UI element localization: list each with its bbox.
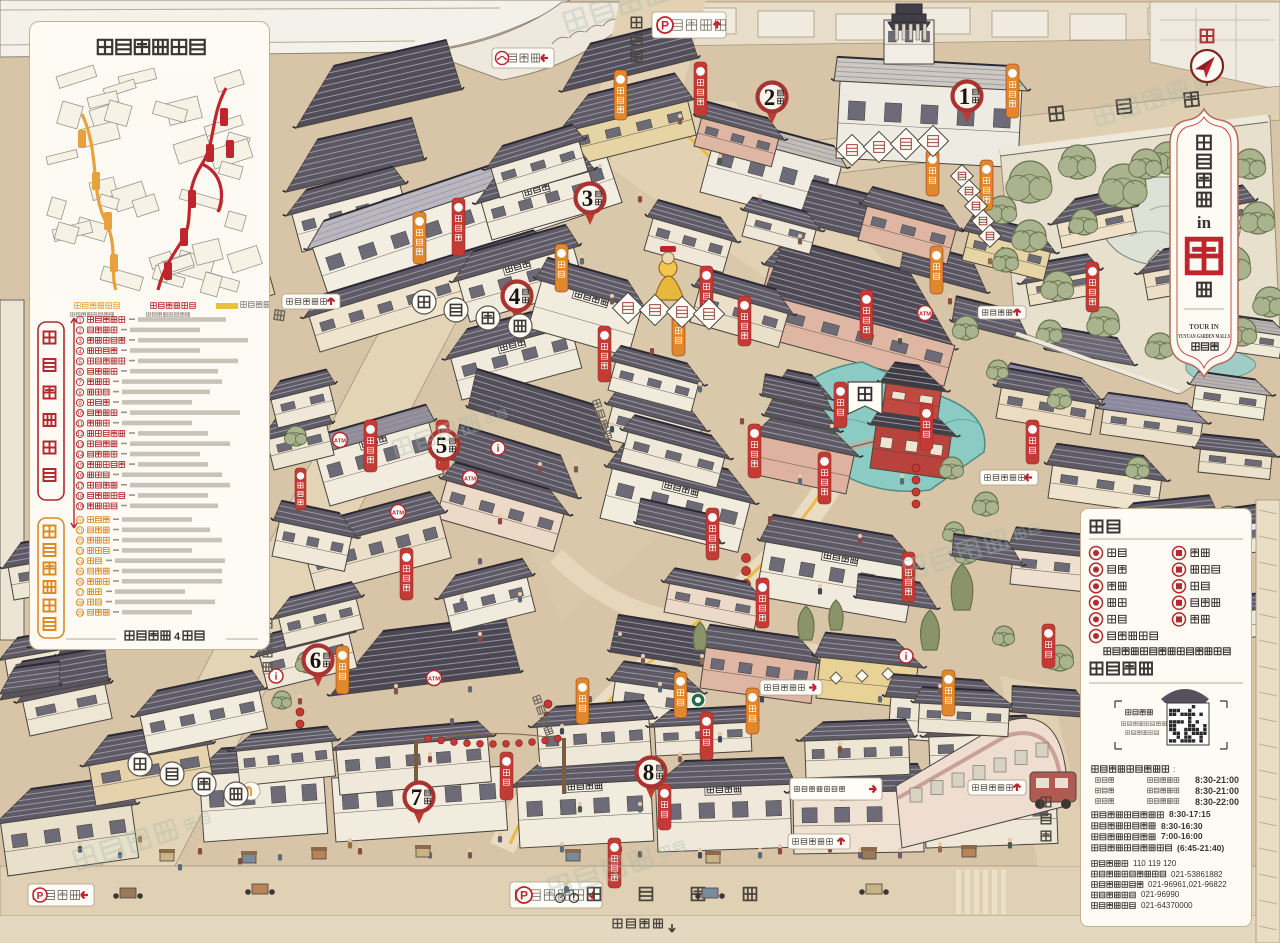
svg-text:021-96961,021-96822: 021-96961,021-96822 bbox=[1148, 880, 1227, 889]
svg-text:8:30-22:00: 8:30-22:00 bbox=[1195, 797, 1239, 807]
svg-text::: : bbox=[1173, 765, 1175, 774]
svg-text:8:30-17:15: 8:30-17:15 bbox=[1169, 809, 1211, 819]
svg-text:i: i bbox=[905, 652, 908, 663]
svg-text:ATM: ATM bbox=[464, 477, 476, 483]
svg-text:24: 24 bbox=[77, 560, 83, 566]
svg-text:i: i bbox=[497, 444, 500, 455]
svg-text:(6:45-21:40): (6:45-21:40) bbox=[1177, 843, 1224, 853]
svg-text:P: P bbox=[661, 19, 669, 33]
svg-text:021-64370000: 021-64370000 bbox=[1141, 901, 1193, 910]
svg-text:P: P bbox=[37, 891, 44, 902]
svg-text:8:30-21:00: 8:30-21:00 bbox=[1195, 775, 1239, 785]
svg-text:4: 4 bbox=[509, 284, 521, 309]
svg-text:20: 20 bbox=[77, 518, 83, 524]
svg-text:in: in bbox=[1197, 213, 1212, 232]
svg-text:11: 11 bbox=[77, 422, 84, 428]
svg-text:29: 29 bbox=[77, 611, 83, 617]
svg-text:26: 26 bbox=[77, 580, 83, 586]
svg-text:6: 6 bbox=[310, 648, 322, 673]
svg-text:17: 17 bbox=[77, 484, 84, 490]
svg-text:P: P bbox=[520, 889, 528, 903]
svg-text:15: 15 bbox=[77, 463, 84, 469]
svg-text:19: 19 bbox=[77, 505, 84, 511]
svg-text:7:00-16:00: 7:00-16:00 bbox=[1161, 831, 1203, 841]
svg-text:ATM: ATM bbox=[334, 439, 346, 445]
svg-text:021-53861882: 021-53861882 bbox=[1171, 870, 1223, 879]
svg-text:13: 13 bbox=[77, 443, 84, 449]
svg-text:12: 12 bbox=[77, 432, 84, 438]
svg-text:23: 23 bbox=[77, 549, 83, 555]
svg-text:4: 4 bbox=[174, 631, 181, 643]
svg-text:1: 1 bbox=[959, 84, 971, 109]
svg-text:22: 22 bbox=[77, 539, 83, 545]
svg-text:18: 18 bbox=[77, 494, 84, 500]
svg-text:TOUR IN: TOUR IN bbox=[1189, 323, 1219, 331]
svg-text:8:30-21:00: 8:30-21:00 bbox=[1195, 786, 1239, 796]
svg-text:ATM: ATM bbox=[392, 511, 404, 517]
svg-text:ATM: ATM bbox=[428, 677, 440, 683]
svg-text:8:30-16:30: 8:30-16:30 bbox=[1161, 821, 1203, 831]
svg-text:110 119 120: 110 119 120 bbox=[1133, 859, 1177, 868]
svg-text:10: 10 bbox=[77, 412, 84, 418]
svg-text:16: 16 bbox=[77, 474, 84, 480]
svg-text:25: 25 bbox=[77, 570, 83, 576]
svg-text:7: 7 bbox=[411, 785, 423, 810]
svg-text:021-96990: 021-96990 bbox=[1141, 890, 1180, 899]
svg-text:3: 3 bbox=[582, 186, 594, 211]
svg-text:YUYUAN GARDEN MALLS: YUYUAN GARDEN MALLS bbox=[1178, 334, 1230, 340]
svg-text:i: i bbox=[275, 672, 278, 683]
svg-text:21: 21 bbox=[77, 529, 83, 535]
svg-text:ATM: ATM bbox=[919, 312, 931, 318]
svg-text:2: 2 bbox=[764, 85, 776, 110]
svg-text:28: 28 bbox=[77, 601, 83, 607]
svg-text:14: 14 bbox=[77, 453, 84, 459]
svg-text:27: 27 bbox=[77, 591, 83, 597]
svg-text:8: 8 bbox=[643, 760, 655, 785]
